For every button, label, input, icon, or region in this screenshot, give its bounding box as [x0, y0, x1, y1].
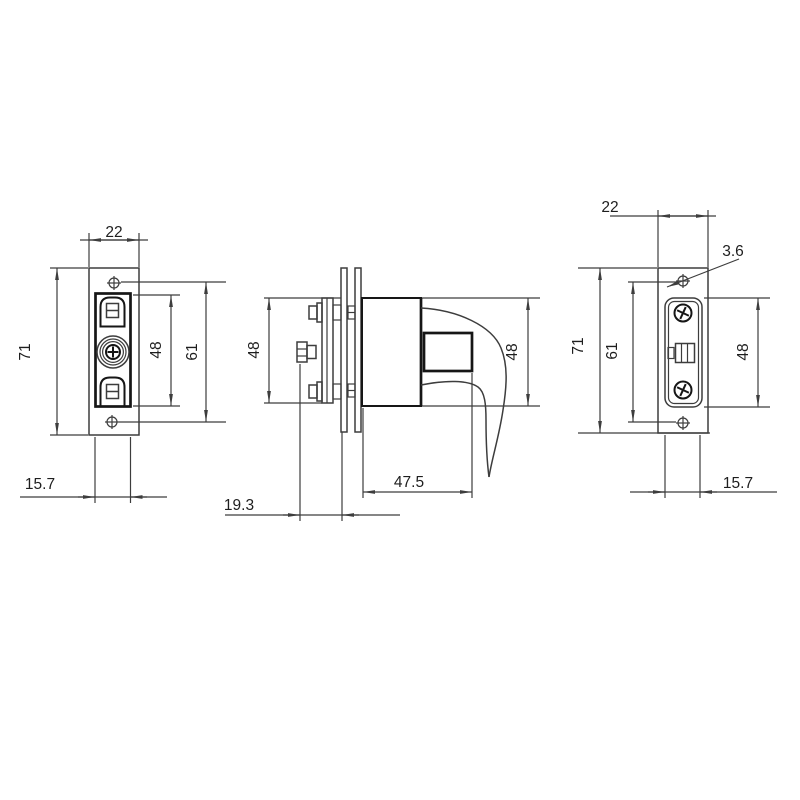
- cylinder-knob: [97, 336, 129, 368]
- dim-label: 15.7: [723, 475, 753, 492]
- screw-head-bottom: [309, 385, 317, 398]
- dim-label: 3.6: [722, 243, 744, 260]
- dim-back-strike-height: 48: [704, 298, 770, 407]
- glass-panel-left: [341, 268, 347, 432]
- lock-body-side: [362, 298, 421, 406]
- fixing-hole-bottom: [676, 416, 690, 430]
- dim-label: 48: [735, 343, 752, 360]
- phillips-screw-top: [674, 304, 691, 321]
- dim-label: 47.5: [394, 474, 424, 491]
- front-view: [89, 268, 139, 435]
- leader-line: [667, 259, 739, 287]
- dim-front-plate-width: 15.7: [20, 437, 167, 503]
- dim-label: 61: [184, 343, 201, 360]
- handle: [421, 308, 506, 477]
- keeper-bottom: [101, 378, 125, 407]
- bolt-shoulder-bottom: [333, 384, 341, 399]
- dim-label: 71: [17, 343, 34, 360]
- thumbturn: [297, 342, 316, 362]
- keeper-outline: [101, 298, 125, 327]
- dim-label: 22: [601, 199, 618, 216]
- dim-side-thumbturn-depth: 19.3: [224, 364, 400, 521]
- glass-panel-right: [355, 268, 361, 432]
- phillips-screw-bottom: [674, 381, 691, 398]
- dim-side-body-height: 48: [504, 298, 528, 406]
- handle-curve-inner: [421, 381, 489, 477]
- bolt-shoulder-top: [333, 305, 341, 320]
- dim-label: 48: [246, 341, 263, 358]
- dim-front-hole-spacing: 61: [119, 282, 226, 422]
- keeper-box: [676, 344, 695, 363]
- screw-flange-bottom: [317, 382, 322, 401]
- front-dimensions: 22 71 48 61 15.7: [17, 224, 226, 503]
- screw-flange-top: [317, 303, 322, 322]
- dim-label: 22: [105, 224, 122, 241]
- back-view: [658, 268, 708, 433]
- screw-head-top: [309, 306, 317, 319]
- dim-side-handle-depth: 47.5: [363, 373, 472, 498]
- fixing-hole-top: [107, 276, 121, 290]
- dim-front-case-height: 48: [133, 295, 180, 406]
- dim-label: 71: [570, 337, 587, 354]
- dim-label: 19.3: [224, 497, 254, 514]
- dim-back-height: 71: [570, 268, 710, 433]
- latch-keeper: [668, 344, 695, 363]
- dim-side-plate-height: 48: [246, 298, 269, 403]
- dim-back-plate-width: 15.7: [630, 435, 777, 498]
- keeper-top: [101, 298, 125, 327]
- thumbturn-neck: [307, 346, 316, 359]
- dim-label: 48: [148, 341, 165, 358]
- fixing-hole-bottom: [105, 415, 119, 429]
- dim-front-width: 22: [80, 224, 148, 267]
- dim-front-height: 71: [17, 268, 88, 435]
- side-view: [264, 268, 540, 477]
- handle-grip-section: [424, 333, 472, 371]
- technical-drawing: 22 71 48 61 15.7: [0, 0, 800, 800]
- screenshot-canvas: 22 71 48 61 15.7: [0, 0, 800, 800]
- dim-label: 61: [604, 342, 621, 359]
- dim-label: 15.7: [25, 476, 55, 493]
- strike-plate: [665, 298, 702, 407]
- side-dimensions: 48 48 19.3 47.5: [224, 298, 528, 521]
- thumbturn-knob: [297, 342, 307, 362]
- dim-back-width: 22: [601, 199, 716, 267]
- dim-label: 48: [504, 343, 521, 360]
